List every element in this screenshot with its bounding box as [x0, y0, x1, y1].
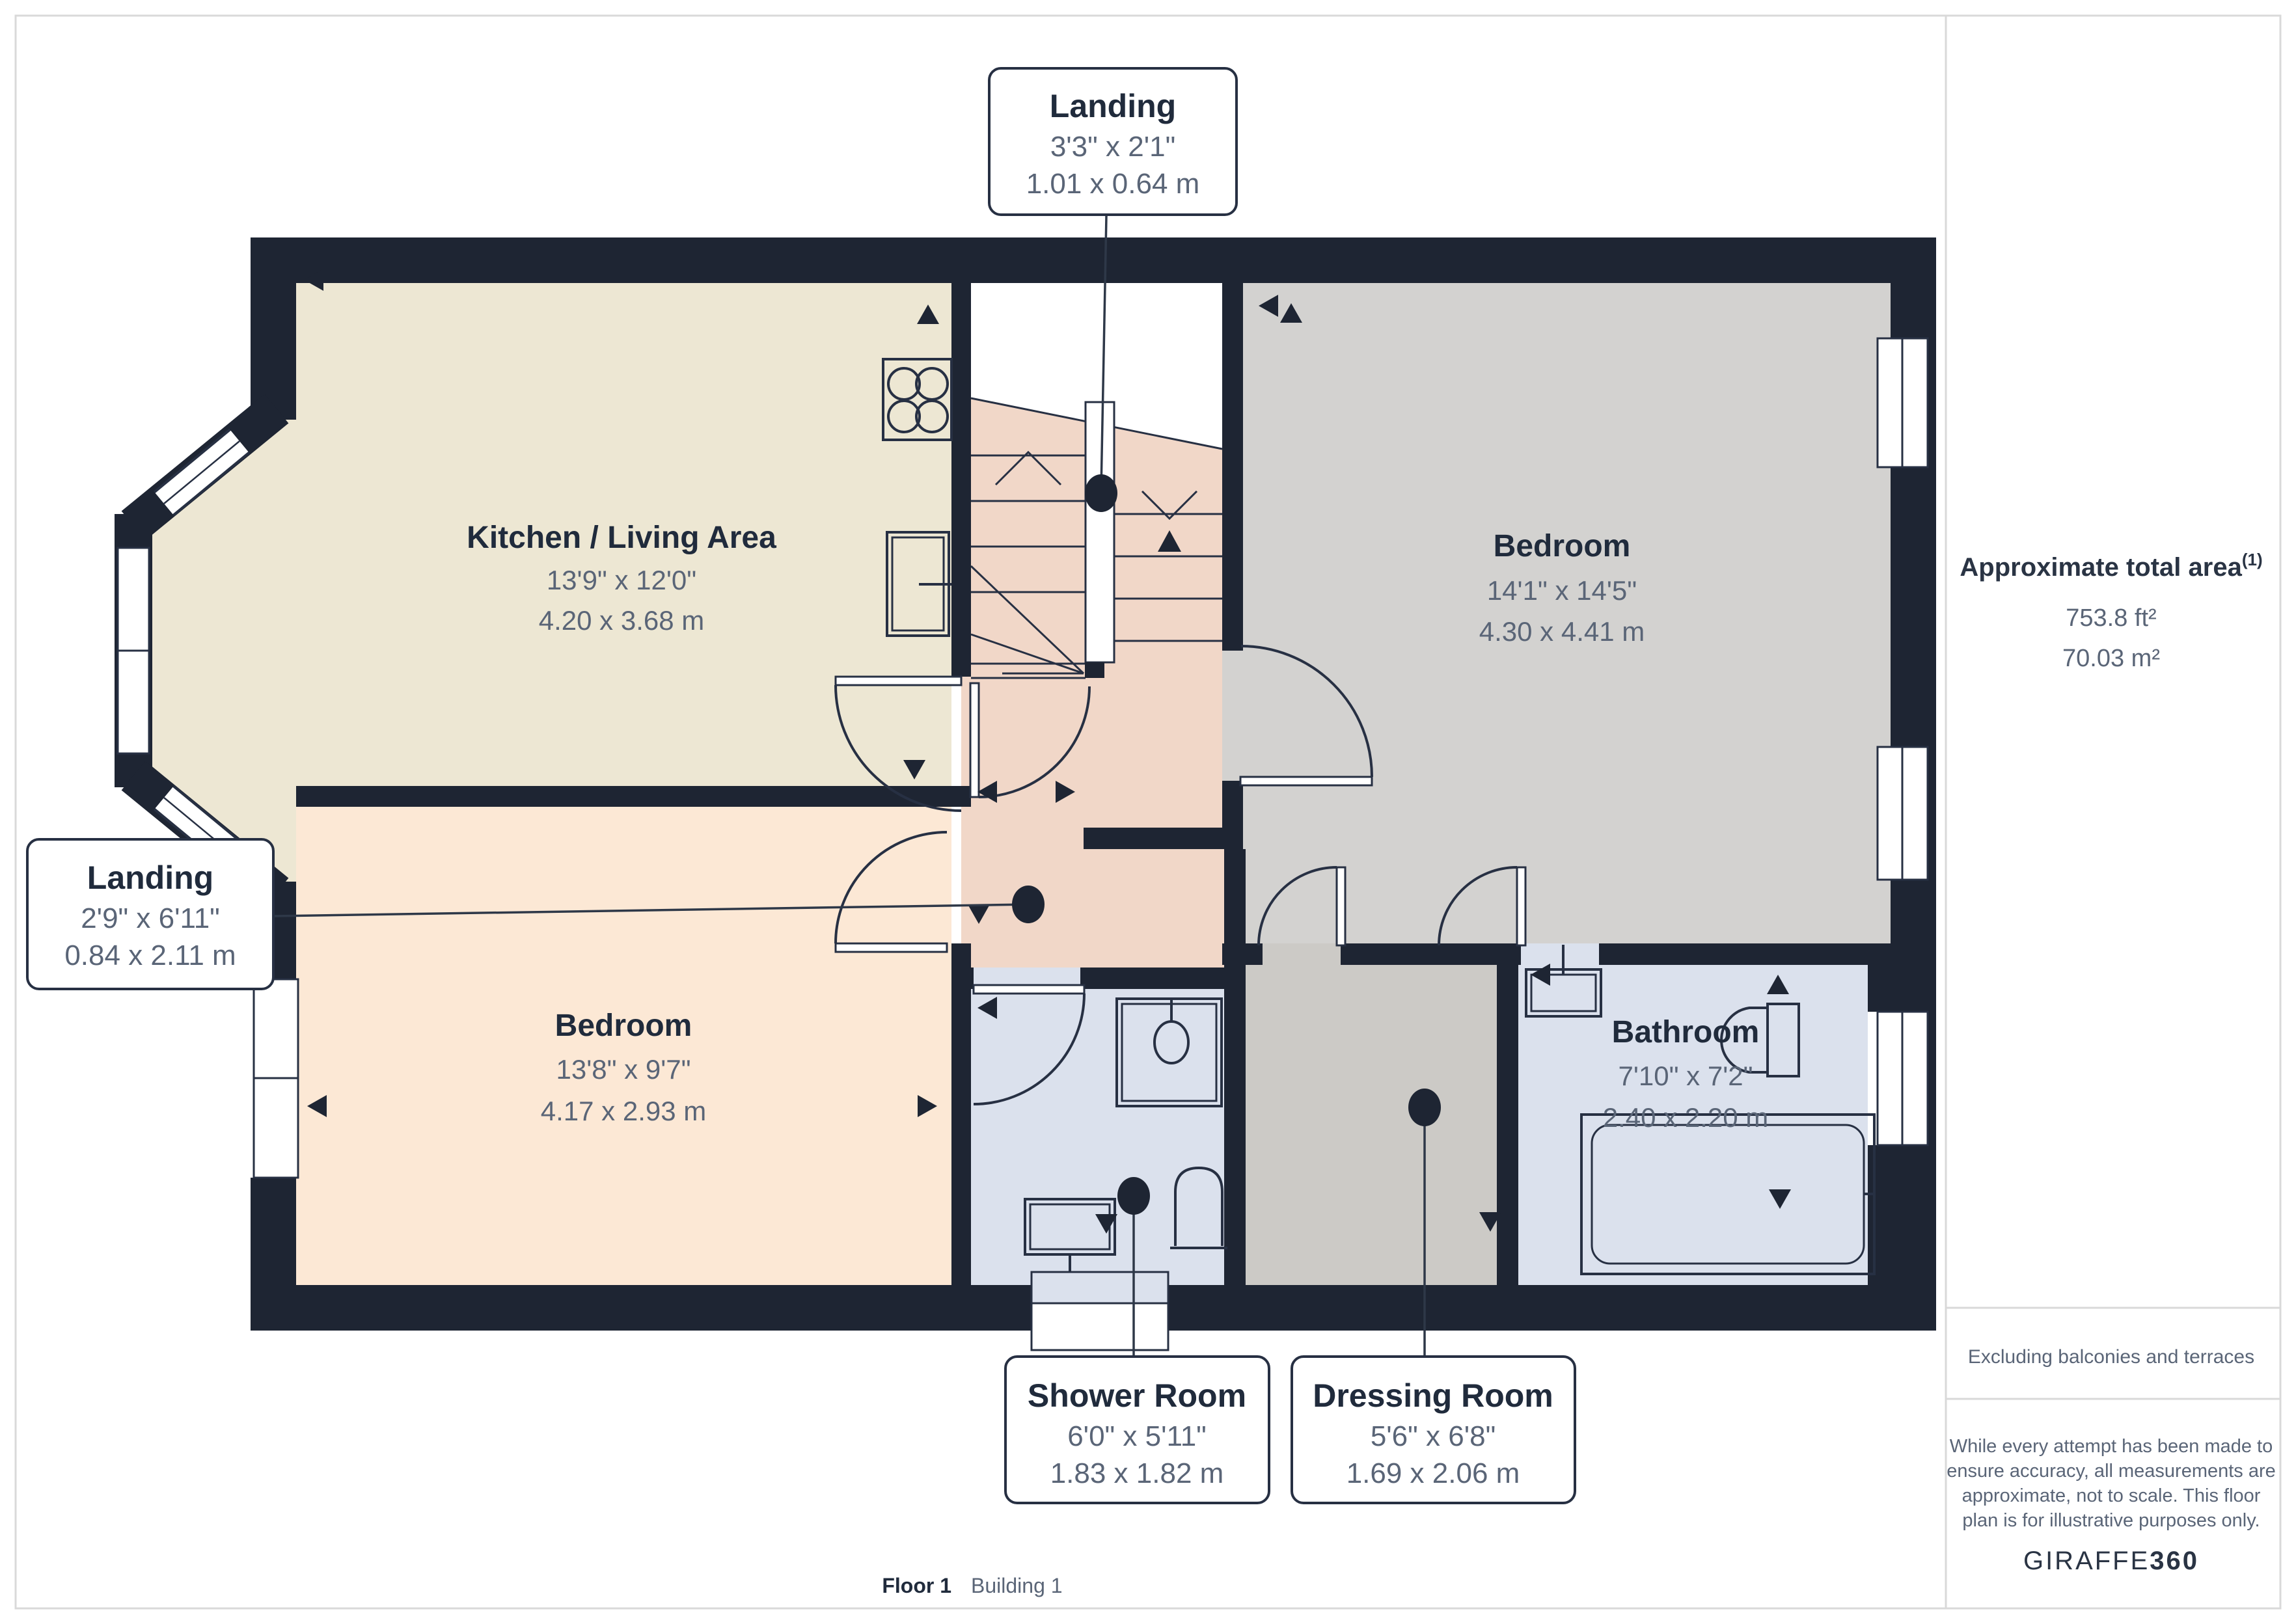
giraffe360-logo: GIRAFFE360 [2023, 1547, 2199, 1575]
sidebar-area-m: 70.03 m² [2062, 645, 2160, 672]
bedroom-right-doorway-floor [1222, 651, 1243, 781]
wall-shower-top [1080, 968, 1224, 989]
callout-shower-title: Shower Room [1028, 1377, 1246, 1414]
floorplan-canvas: Kitchen / Living Area 13'9" x 12'0" 4.20… [0, 0, 2296, 1624]
landing-floor [961, 677, 1222, 828]
wall-top [296, 237, 1936, 283]
kitchen-dim-metric: 4.20 x 3.68 m [539, 605, 704, 636]
callout-landing-left-metric: 0.84 x 2.11 m [64, 940, 236, 971]
bedroom-right-door-leaf [1240, 777, 1372, 785]
logo-text: GIRAFFE [2023, 1547, 2150, 1575]
wall-stair-stub [1085, 662, 1104, 678]
wall-shower-left [951, 943, 971, 1285]
sidebar-title-text: Approximate total area [1960, 553, 2242, 582]
callout-dressing-imperial: 5'6" x 6'8" [1371, 1420, 1496, 1452]
callout-dressing-title: Dressing Room [1313, 1377, 1553, 1414]
wall-bedroom-bottom-b [1341, 943, 1521, 965]
bathroom-doorway-floor [1521, 943, 1599, 965]
sidebar-title-sup: (1) [2242, 550, 2263, 569]
dressing-door-leaf [1337, 867, 1345, 945]
wall-left-upper [251, 237, 296, 420]
wall-shower-dressing [1224, 849, 1246, 1285]
flue-upper [1032, 1272, 1168, 1303]
camera-point [1085, 474, 1117, 512]
sidebar-disclaimer-line: While every attempt has been made to [1950, 1436, 2273, 1457]
wall-bedroom-bottom-a [1222, 943, 1263, 965]
camera-point [1117, 1177, 1150, 1215]
sidebar-disclaimer-line: ensure accuracy, all measurements are [1947, 1461, 2276, 1482]
wall-left-lower [251, 1178, 296, 1285]
callout-landing-top-imperial: 3'3" x 2'1" [1050, 131, 1175, 163]
sidebar: Approximate total area(1) 753.8 ft² 70.0… [1947, 550, 2276, 1575]
callout-dressing-metric: 1.69 x 2.06 m [1346, 1457, 1520, 1489]
bedroom-right-label: Bedroom [1494, 529, 1631, 563]
wall-kitchen-bedroom [296, 786, 971, 807]
camera-point [1408, 1089, 1441, 1126]
bedroom-right-dim-metric: 4.30 x 4.41 m [1479, 616, 1645, 647]
logo-suffix: 360 [2150, 1547, 2199, 1575]
camera-point [1012, 886, 1045, 923]
shower-door-leaf [974, 985, 1084, 994]
stair-door-leaf [970, 683, 979, 797]
footer-building: Building 1 [971, 1574, 1063, 1597]
sidebar-disclaimer-line: approximate, not to scale. This floor [1962, 1485, 2261, 1506]
wall-landing-bedroom-lower [1222, 781, 1243, 828]
callout-landing-left-title: Landing [87, 859, 213, 896]
footer-floor: Floor 1 [882, 1574, 951, 1597]
kitchen-dim-imperial: 13'9" x 12'0" [547, 565, 696, 595]
bathroom-dim-imperial: 7'10" x 7'2" [1619, 1061, 1753, 1091]
wall-bathroom-right-lower [1868, 1145, 1936, 1285]
wall-bathroom-right-upper [1868, 965, 1936, 1012]
sidebar-title: Approximate total area(1) [1960, 550, 2262, 582]
bedroom-right-floor [1243, 283, 1891, 943]
wall-landing-bedroom-upper [1222, 283, 1243, 651]
wall-landing-south [1084, 828, 1243, 849]
bedroom-left-floor [296, 807, 951, 1285]
flue-lower [1032, 1303, 1168, 1350]
callout-shower-metric: 1.83 x 1.82 m [1050, 1457, 1224, 1489]
bedroom-left-door-leaf [836, 943, 947, 952]
callout-landing-top-metric: 1.01 x 0.64 m [1026, 168, 1200, 200]
callout-landing-left-imperial: 2'9" x 6'11" [81, 902, 220, 934]
stairwell-channel [1086, 402, 1114, 662]
bathroom-door-leaf [1517, 867, 1525, 945]
dressing-room-floor [1246, 965, 1497, 1285]
kitchen-door-leaf [836, 677, 961, 685]
floorplan-page: Kitchen / Living Area 13'9" x 12'0" 4.20… [0, 0, 2296, 1624]
bathroom-label: Bathroom [1612, 1015, 1760, 1049]
footer: Floor 1 Building 1 [882, 1574, 1062, 1597]
bedroom-right-dim-imperial: 14'1" x 14'5" [1487, 575, 1637, 606]
sidebar-area-ft: 753.8 ft² [2066, 604, 2156, 632]
bedroom-left-dim-imperial: 13'8" x 9'7" [556, 1054, 691, 1085]
wall-bedroom-bottom-c [1599, 943, 1891, 965]
bathroom-dim-metric: 2.40 x 2.20 m [1603, 1102, 1768, 1133]
bedroom-left-dim-metric: 4.17 x 2.93 m [541, 1096, 706, 1126]
callout-landing-top-title: Landing [1050, 88, 1176, 124]
wall-kitchen-stairs [951, 283, 971, 677]
bedroom-left-label: Bedroom [555, 1008, 692, 1043]
dressing-doorway-floor [1263, 943, 1341, 965]
flue-block [1032, 1272, 1168, 1350]
sidebar-excluding: Excluding balconies and terraces [1968, 1346, 2254, 1368]
kitchen-label: Kitchen / Living Area [467, 521, 776, 555]
callout-shower-imperial: 6'0" x 5'11" [1067, 1420, 1207, 1452]
wall-dressing-bathroom [1497, 965, 1518, 1285]
room-floors [150, 283, 1891, 1285]
sidebar-disclaimer-line: plan is for illustrative purposes only. [1962, 1510, 2260, 1531]
